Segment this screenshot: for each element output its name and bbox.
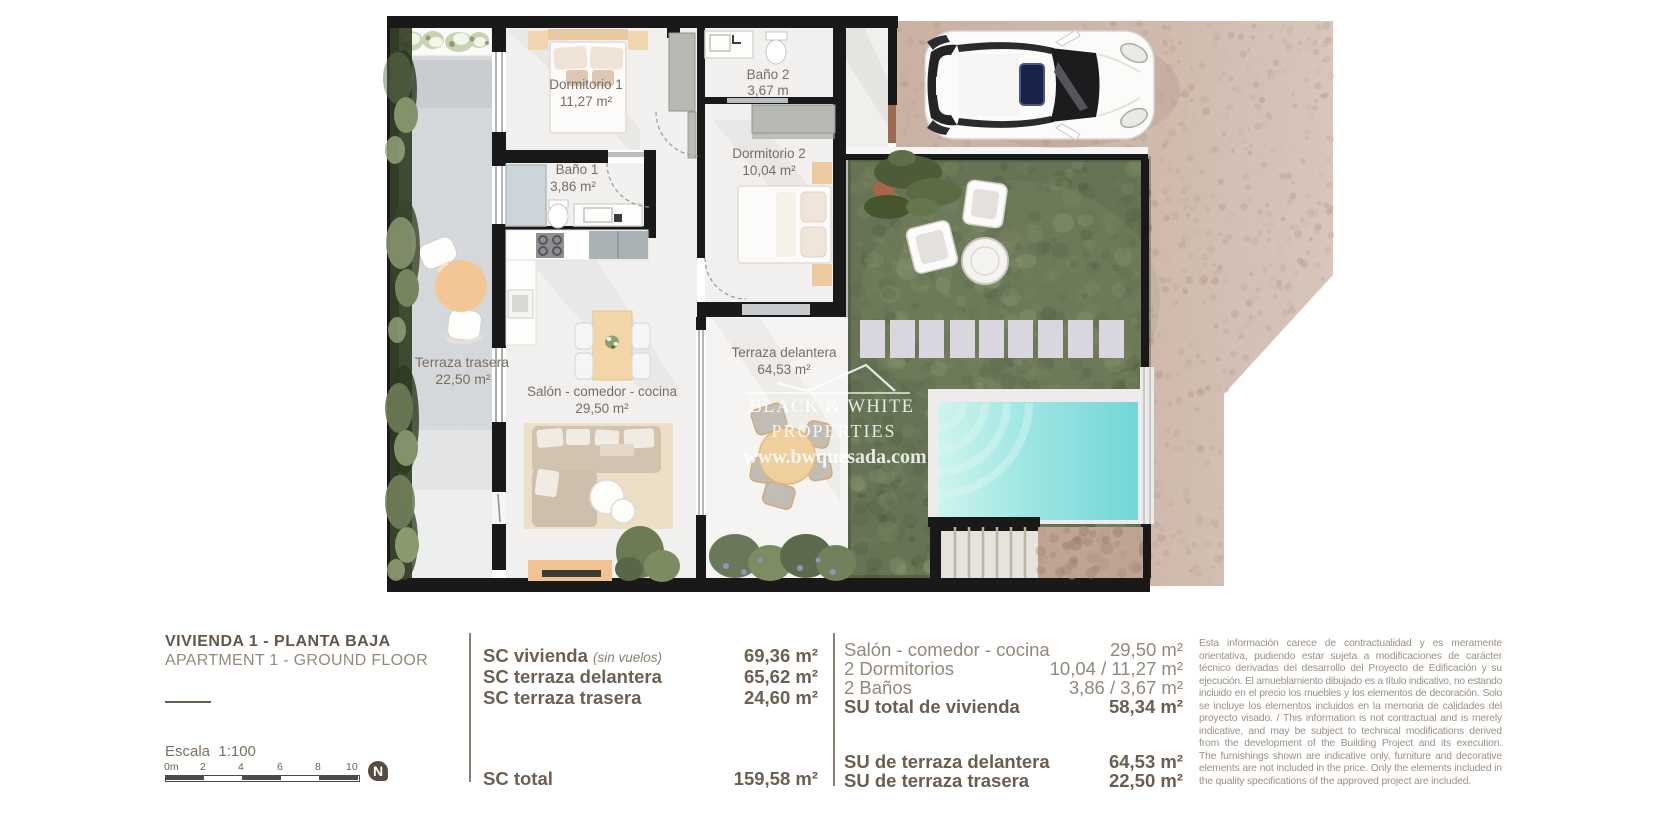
svg-text:www.bwquesada.com: www.bwquesada.com: [743, 446, 927, 468]
svg-text:Dormitorio 1: Dormitorio 1: [549, 77, 623, 92]
svg-text:Dormitorio 2: Dormitorio 2: [732, 146, 806, 161]
svg-text:3,86 m²: 3,86 m²: [550, 179, 596, 194]
svg-text:29,50 m²: 29,50 m²: [575, 401, 629, 416]
svg-text:Terraza delantera: Terraza delantera: [731, 345, 837, 360]
svg-text:22,50 m²: 22,50 m²: [435, 371, 491, 387]
svg-text:Baño 1: Baño 1: [556, 162, 599, 177]
svg-text:Terraza trasera: Terraza trasera: [415, 354, 509, 370]
svg-text:Baño 2: Baño 2: [747, 67, 790, 82]
svg-text:Salón - comedor - cocina: Salón - comedor - cocina: [527, 384, 678, 399]
svg-text:11,27 m²: 11,27 m²: [560, 94, 613, 109]
svg-text:BLACK & WHITE: BLACK & WHITE: [749, 397, 914, 417]
svg-text:PROPERTIES: PROPERTIES: [772, 421, 897, 441]
svg-text:3,67 m: 3,67 m: [747, 83, 788, 98]
svg-text:10,04 m²: 10,04 m²: [742, 163, 796, 178]
svg-text:64,53 m²: 64,53 m²: [757, 362, 811, 377]
